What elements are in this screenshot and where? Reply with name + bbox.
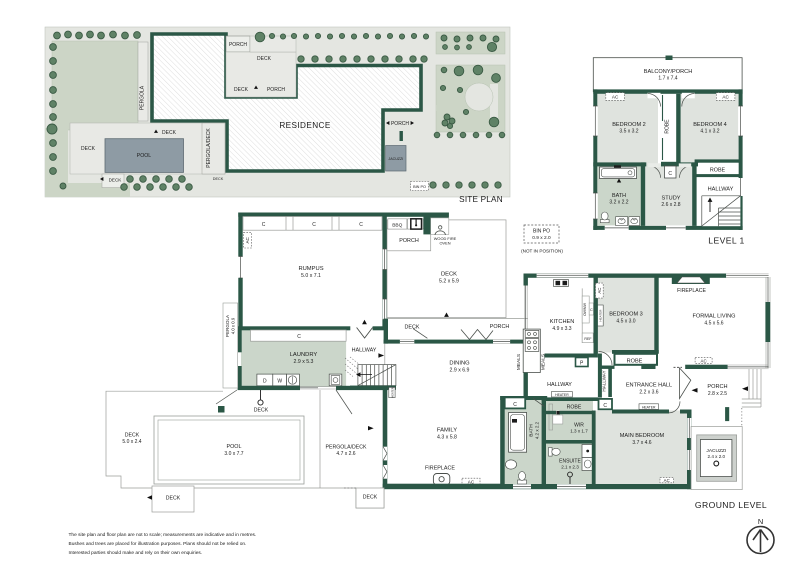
svg-text:HALLWAY: HALLWAY bbox=[708, 187, 734, 193]
svg-text:5.0 x 2.4: 5.0 x 2.4 bbox=[122, 439, 141, 445]
svg-text:HALLWAY: HALLWAY bbox=[601, 370, 606, 391]
svg-text:PORCH: PORCH bbox=[391, 121, 409, 127]
svg-text:LEVEL 1: LEVEL 1 bbox=[708, 236, 744, 246]
svg-text:The site plan and floor plan a: The site plan and floor plan are not to … bbox=[69, 532, 257, 538]
svg-text:ROBE: ROBE bbox=[627, 359, 643, 365]
svg-text:DECK: DECK bbox=[213, 177, 224, 181]
svg-text:C: C bbox=[603, 403, 607, 409]
svg-text:5.2 x 5.9: 5.2 x 5.9 bbox=[439, 279, 459, 285]
svg-text:2.8 x 2.5: 2.8 x 2.5 bbox=[708, 391, 727, 397]
svg-text:DECK: DECK bbox=[234, 87, 249, 93]
svg-text:FAMILY: FAMILY bbox=[437, 428, 457, 434]
svg-text:N: N bbox=[758, 517, 763, 526]
svg-text:4.0 x 0.9: 4.0 x 0.9 bbox=[231, 317, 236, 334]
svg-text:FIREPLACE: FIREPLACE bbox=[677, 288, 706, 294]
svg-text:LAUNDRY: LAUNDRY bbox=[290, 352, 318, 358]
svg-text:HEATER: HEATER bbox=[390, 387, 394, 397]
svg-text:STUDY: STUDY bbox=[662, 196, 681, 202]
svg-text:BALCONY/PORCH: BALCONY/PORCH bbox=[644, 69, 693, 75]
svg-text:Interested parties should make: Interested parties should make and rely … bbox=[69, 550, 203, 556]
svg-text:2.6 x 2.8: 2.6 x 2.8 bbox=[661, 202, 680, 208]
svg-text:PERGOLA/DECK: PERGOLA/DECK bbox=[206, 128, 212, 168]
svg-text:PERGOLA/DECK: PERGOLA/DECK bbox=[326, 445, 367, 451]
svg-text:PORCH: PORCH bbox=[229, 42, 247, 48]
svg-text:DECK: DECK bbox=[109, 178, 123, 183]
svg-text:PORCH: PORCH bbox=[707, 384, 727, 390]
svg-text:REF: REF bbox=[584, 337, 592, 341]
svg-text:3.0 x 7.7: 3.0 x 7.7 bbox=[224, 451, 243, 457]
svg-text:2.9 x 5.3: 2.9 x 5.3 bbox=[294, 359, 314, 365]
svg-text:DECK: DECK bbox=[254, 408, 269, 414]
svg-text:MEALS: MEALS bbox=[516, 354, 522, 370]
svg-text:PORCH: PORCH bbox=[490, 324, 510, 330]
svg-text:3.2 x 2.2: 3.2 x 2.2 bbox=[609, 200, 628, 206]
svg-text:HEATER: HEATER bbox=[599, 309, 603, 322]
svg-text:4.5 x 5.6: 4.5 x 5.6 bbox=[704, 321, 723, 327]
svg-text:AC: AC bbox=[722, 95, 729, 100]
svg-text:DECK: DECK bbox=[166, 496, 181, 502]
svg-text:MAIN BEDROOM: MAIN BEDROOM bbox=[620, 433, 665, 439]
svg-text:HEATER: HEATER bbox=[642, 405, 656, 409]
svg-text:DECK: DECK bbox=[441, 272, 457, 278]
svg-text:AC: AC bbox=[612, 95, 619, 100]
svg-text:4.5 x 3.0: 4.5 x 3.0 bbox=[616, 319, 635, 325]
svg-text:4.3 x 5.8: 4.3 x 5.8 bbox=[437, 435, 457, 441]
svg-text:POOL: POOL bbox=[227, 444, 242, 450]
svg-text:C: C bbox=[668, 171, 672, 177]
svg-text:W: W bbox=[277, 379, 282, 385]
svg-text:BIN PO: BIN PO bbox=[413, 185, 426, 189]
svg-text:PORCH: PORCH bbox=[399, 238, 419, 244]
svg-text:DECK: DECK bbox=[81, 146, 96, 152]
svg-text:C: C bbox=[262, 222, 266, 228]
svg-text:PERGOLA: PERGOLA bbox=[140, 85, 146, 110]
svg-text:3.5 x 3.2: 3.5 x 3.2 bbox=[619, 129, 638, 135]
svg-text:4.1 x 3.2: 4.1 x 3.2 bbox=[700, 129, 719, 135]
svg-text:AC: AC bbox=[664, 478, 670, 483]
svg-text:4.7 x 2.6: 4.7 x 2.6 bbox=[336, 451, 355, 457]
svg-text:4.2 x 2.2: 4.2 x 2.2 bbox=[535, 421, 540, 439]
svg-text:OVEN: OVEN bbox=[439, 241, 450, 246]
svg-text:DECK: DECK bbox=[257, 56, 272, 62]
svg-text:ENTRANCE HALL: ENTRANCE HALL bbox=[626, 383, 672, 389]
svg-text:HALLWAY: HALLWAY bbox=[547, 382, 572, 388]
svg-text:JACUZZI: JACUZZI bbox=[388, 157, 403, 161]
svg-text:AC: AC bbox=[701, 358, 707, 363]
svg-text:DECK: DECK bbox=[125, 433, 140, 439]
svg-text:DECK: DECK bbox=[162, 130, 177, 136]
svg-text:RESIDENCE: RESIDENCE bbox=[279, 121, 331, 130]
svg-text:2.2 x 3.6: 2.2 x 3.6 bbox=[639, 390, 658, 396]
svg-text:FIREPLACE: FIREPLACE bbox=[425, 466, 455, 472]
svg-text:(NOT IN POSITION): (NOT IN POSITION) bbox=[521, 249, 563, 254]
svg-text:RUMPUS: RUMPUS bbox=[298, 266, 323, 272]
svg-text:1.7 x 7.4: 1.7 x 7.4 bbox=[658, 76, 677, 82]
svg-text:OW/MW: OW/MW bbox=[583, 302, 587, 316]
svg-text:DECK: DECK bbox=[405, 325, 420, 331]
svg-text:C: C bbox=[312, 222, 316, 228]
svg-text:C: C bbox=[513, 402, 517, 408]
svg-text:HEATER: HEATER bbox=[555, 393, 569, 397]
svg-text:POOL: POOL bbox=[137, 153, 152, 159]
svg-text:BEDROOM 2: BEDROOM 2 bbox=[612, 122, 646, 128]
svg-text:C: C bbox=[359, 222, 363, 228]
svg-text:D: D bbox=[263, 379, 267, 385]
svg-text:DECK: DECK bbox=[363, 495, 378, 501]
svg-text:PERGOLA: PERGOLA bbox=[225, 314, 230, 337]
svg-text:BEDROOM 4: BEDROOM 4 bbox=[693, 122, 727, 128]
svg-text:AC: AC bbox=[468, 479, 475, 484]
svg-text:AC: AC bbox=[597, 288, 602, 294]
svg-text:FORMAL LIVING: FORMAL LIVING bbox=[693, 314, 736, 320]
svg-text:ROBE: ROBE bbox=[665, 119, 671, 134]
svg-text:BATH: BATH bbox=[612, 193, 626, 199]
svg-text:SITE PLAN: SITE PLAN bbox=[459, 195, 503, 204]
svg-text:3.7 x 4.6: 3.7 x 4.6 bbox=[632, 440, 651, 446]
svg-text:BIN PO: BIN PO bbox=[533, 229, 550, 235]
svg-text:ROBE: ROBE bbox=[567, 405, 582, 411]
svg-text:1.3 x 1.7: 1.3 x 1.7 bbox=[570, 429, 588, 434]
svg-text:BBQ: BBQ bbox=[392, 223, 402, 229]
svg-text:4.9 x 3.3: 4.9 x 3.3 bbox=[552, 326, 571, 332]
svg-text:2.1 x 2.3: 2.1 x 2.3 bbox=[561, 465, 579, 470]
svg-text:DINING: DINING bbox=[449, 361, 470, 367]
svg-text:0.9 x 2.0: 0.9 x 2.0 bbox=[532, 235, 551, 241]
svg-text:ROBE: ROBE bbox=[710, 168, 726, 174]
svg-text:AC: AC bbox=[245, 236, 250, 243]
svg-text:C: C bbox=[590, 308, 593, 312]
svg-text:2.9 x 6.9: 2.9 x 6.9 bbox=[450, 368, 470, 374]
svg-text:PORCH: PORCH bbox=[267, 87, 285, 93]
svg-text:C: C bbox=[297, 334, 301, 340]
svg-text:Bushes and trees are placed fo: Bushes and trees are placed for illustra… bbox=[69, 541, 247, 547]
svg-text:HALLWAY: HALLWAY bbox=[352, 348, 377, 354]
svg-text:2.4 x 2.0: 2.4 x 2.0 bbox=[707, 454, 725, 459]
svg-text:GROUND LEVEL: GROUND LEVEL bbox=[695, 500, 767, 510]
svg-text:KITCHEN: KITCHEN bbox=[550, 319, 575, 325]
svg-text:BEDROOM 3: BEDROOM 3 bbox=[609, 312, 643, 318]
svg-text:5.0 x 7.1: 5.0 x 7.1 bbox=[301, 273, 321, 279]
